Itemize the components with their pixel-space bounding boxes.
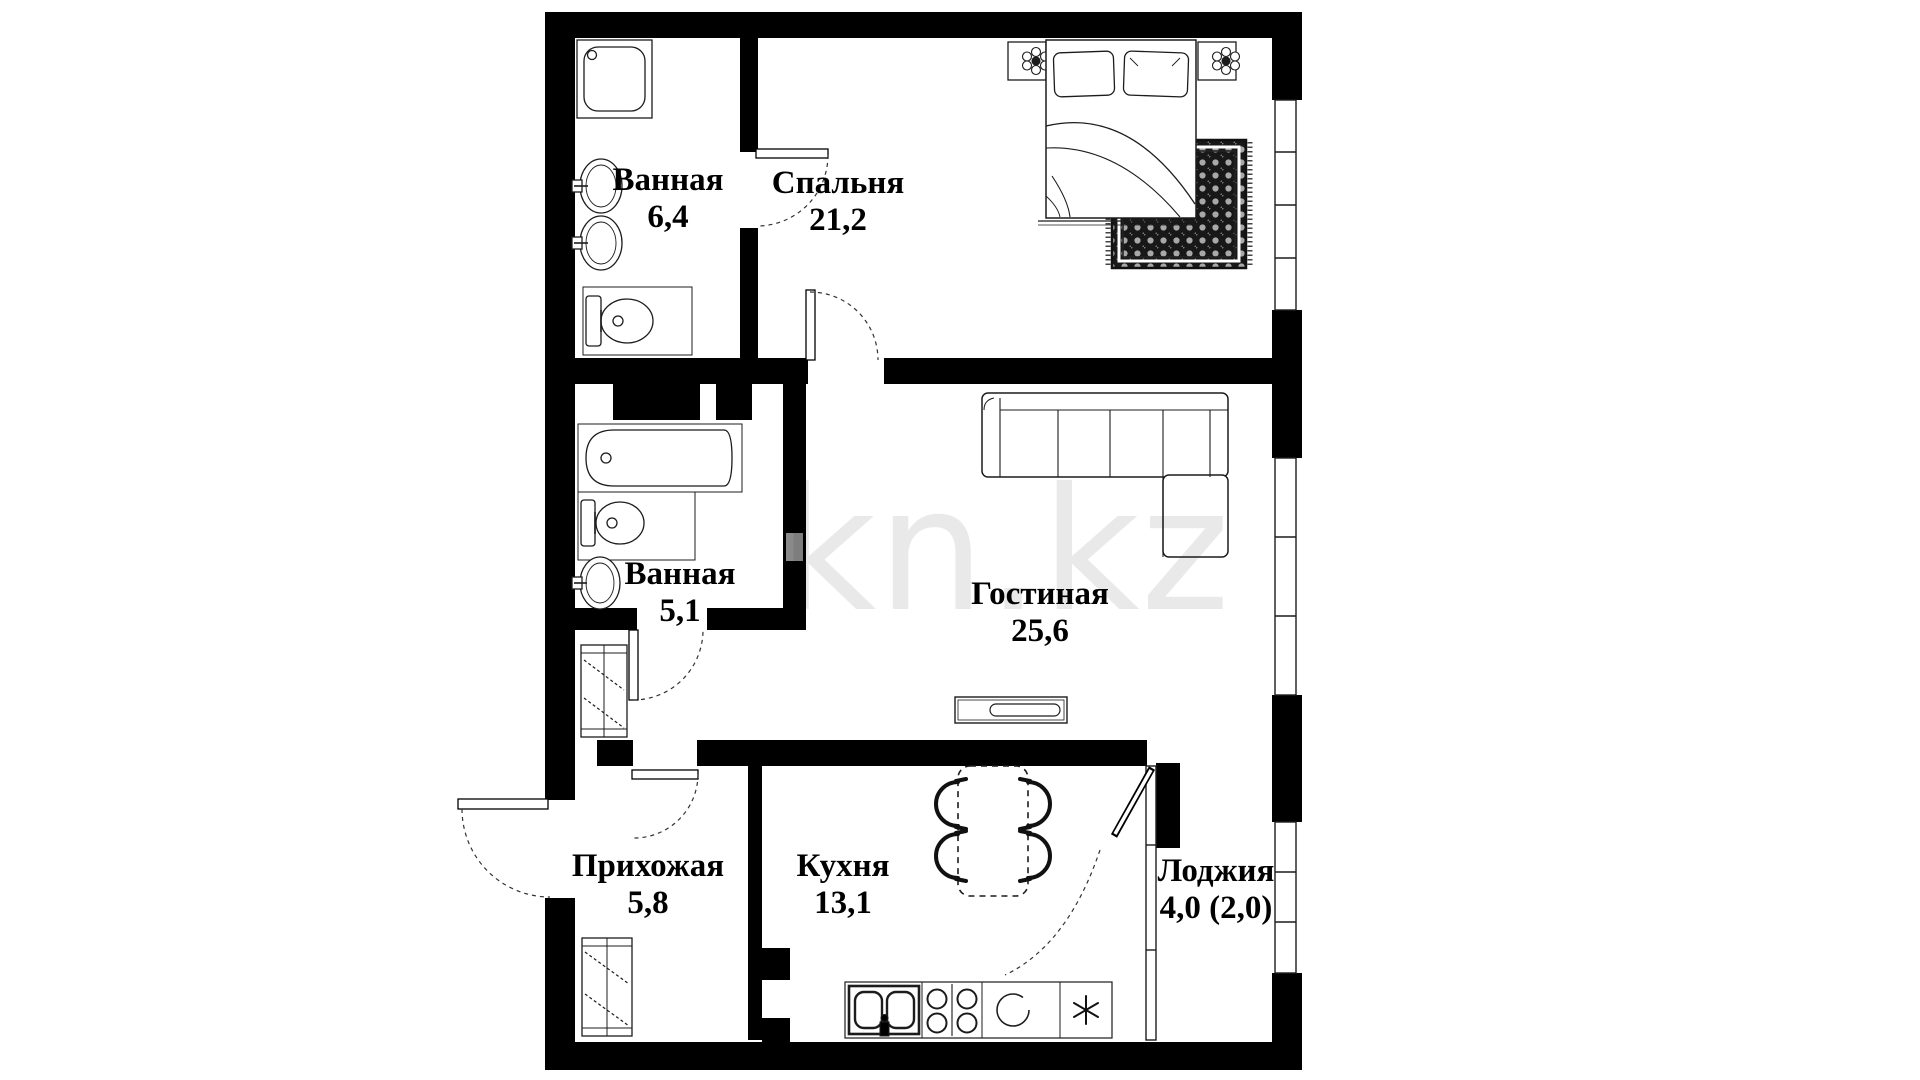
wall-hall-kitchen-block-1 (762, 948, 790, 980)
wall-right-3 (1272, 695, 1302, 822)
bathtub-icon (578, 424, 742, 492)
window-living-icon (1275, 458, 1296, 695)
wall-kitchen-top-right (697, 740, 1147, 766)
wall-right-4 (1272, 973, 1302, 1070)
wardrobe-icon (582, 938, 632, 1036)
toilet-icon (578, 492, 695, 560)
room-label-bathroom-2: Ванная 5,1 (570, 556, 790, 630)
bedroom-furniture (1008, 40, 1250, 268)
room-label-living: Гостиная 25,6 (930, 576, 1150, 650)
room-name: Ванная (625, 556, 736, 592)
wall-bath1-bedroom-upper (740, 38, 758, 152)
duct-block-2 (716, 384, 752, 420)
kitchen-sink-icon (849, 986, 919, 1036)
wall-top (545, 12, 1302, 38)
room-name: Лоджия (1158, 853, 1275, 889)
bathroom2-door-icon (629, 630, 703, 700)
wall-right-2 (1272, 310, 1302, 458)
room-label-loggia: Лоджия 4,0 (2,0) (1106, 853, 1326, 927)
wall-loggia-stub (1156, 763, 1180, 848)
room-label-hallway: Прихожая 5,8 (538, 848, 758, 922)
bedroom-door-icon (806, 290, 878, 360)
room-name: Кухня (797, 848, 890, 884)
room-area: 5,8 (538, 885, 758, 922)
kitchen-door-icon (632, 770, 698, 838)
room-area: 5,1 (570, 593, 790, 630)
nightstand-lamp-icon (1213, 48, 1240, 75)
wall-mid-horizontal-left (575, 358, 808, 384)
shower-icon (577, 40, 652, 118)
room-name: Гостиная (971, 576, 1109, 612)
wall-hall-kitchen-block-2 (762, 1018, 790, 1042)
room-area: 25,6 (930, 613, 1150, 650)
toilet-icon (583, 287, 692, 355)
hallway-furniture (581, 645, 632, 1036)
entry-door-icon (458, 799, 550, 897)
room-name: Ванная (613, 162, 724, 198)
room-label-bedroom: Спальня 21,2 (728, 165, 948, 239)
wall-mid-horizontal-right (884, 358, 1272, 384)
room-label-kitchen: Кухня 13,1 (733, 848, 953, 922)
wall-left-upper (545, 12, 575, 800)
wardrobe-icon (581, 645, 627, 737)
wall-right-1 (1272, 12, 1302, 100)
room-name: Спальня (772, 165, 904, 201)
wall-kitchen-top-left (597, 740, 633, 766)
wall-bottom (545, 1042, 1302, 1070)
duct-block-1 (613, 384, 700, 420)
room-area: 21,2 (728, 202, 948, 239)
tv-stand-icon (955, 697, 1067, 723)
bed-icon (1038, 40, 1198, 225)
room-area: 4,0 (2,0) (1106, 890, 1326, 927)
window-bedroom-icon (1275, 100, 1296, 310)
dining-table-icon (958, 766, 1028, 896)
room-area: 13,1 (733, 885, 953, 922)
wall-bath1-bedroom-lower (740, 228, 758, 358)
room-name: Прихожая (572, 848, 724, 884)
floor-plan: kn.kz Ванная 6,4 Спальня 21,2 Ванная 5,1… (0, 0, 1920, 1080)
